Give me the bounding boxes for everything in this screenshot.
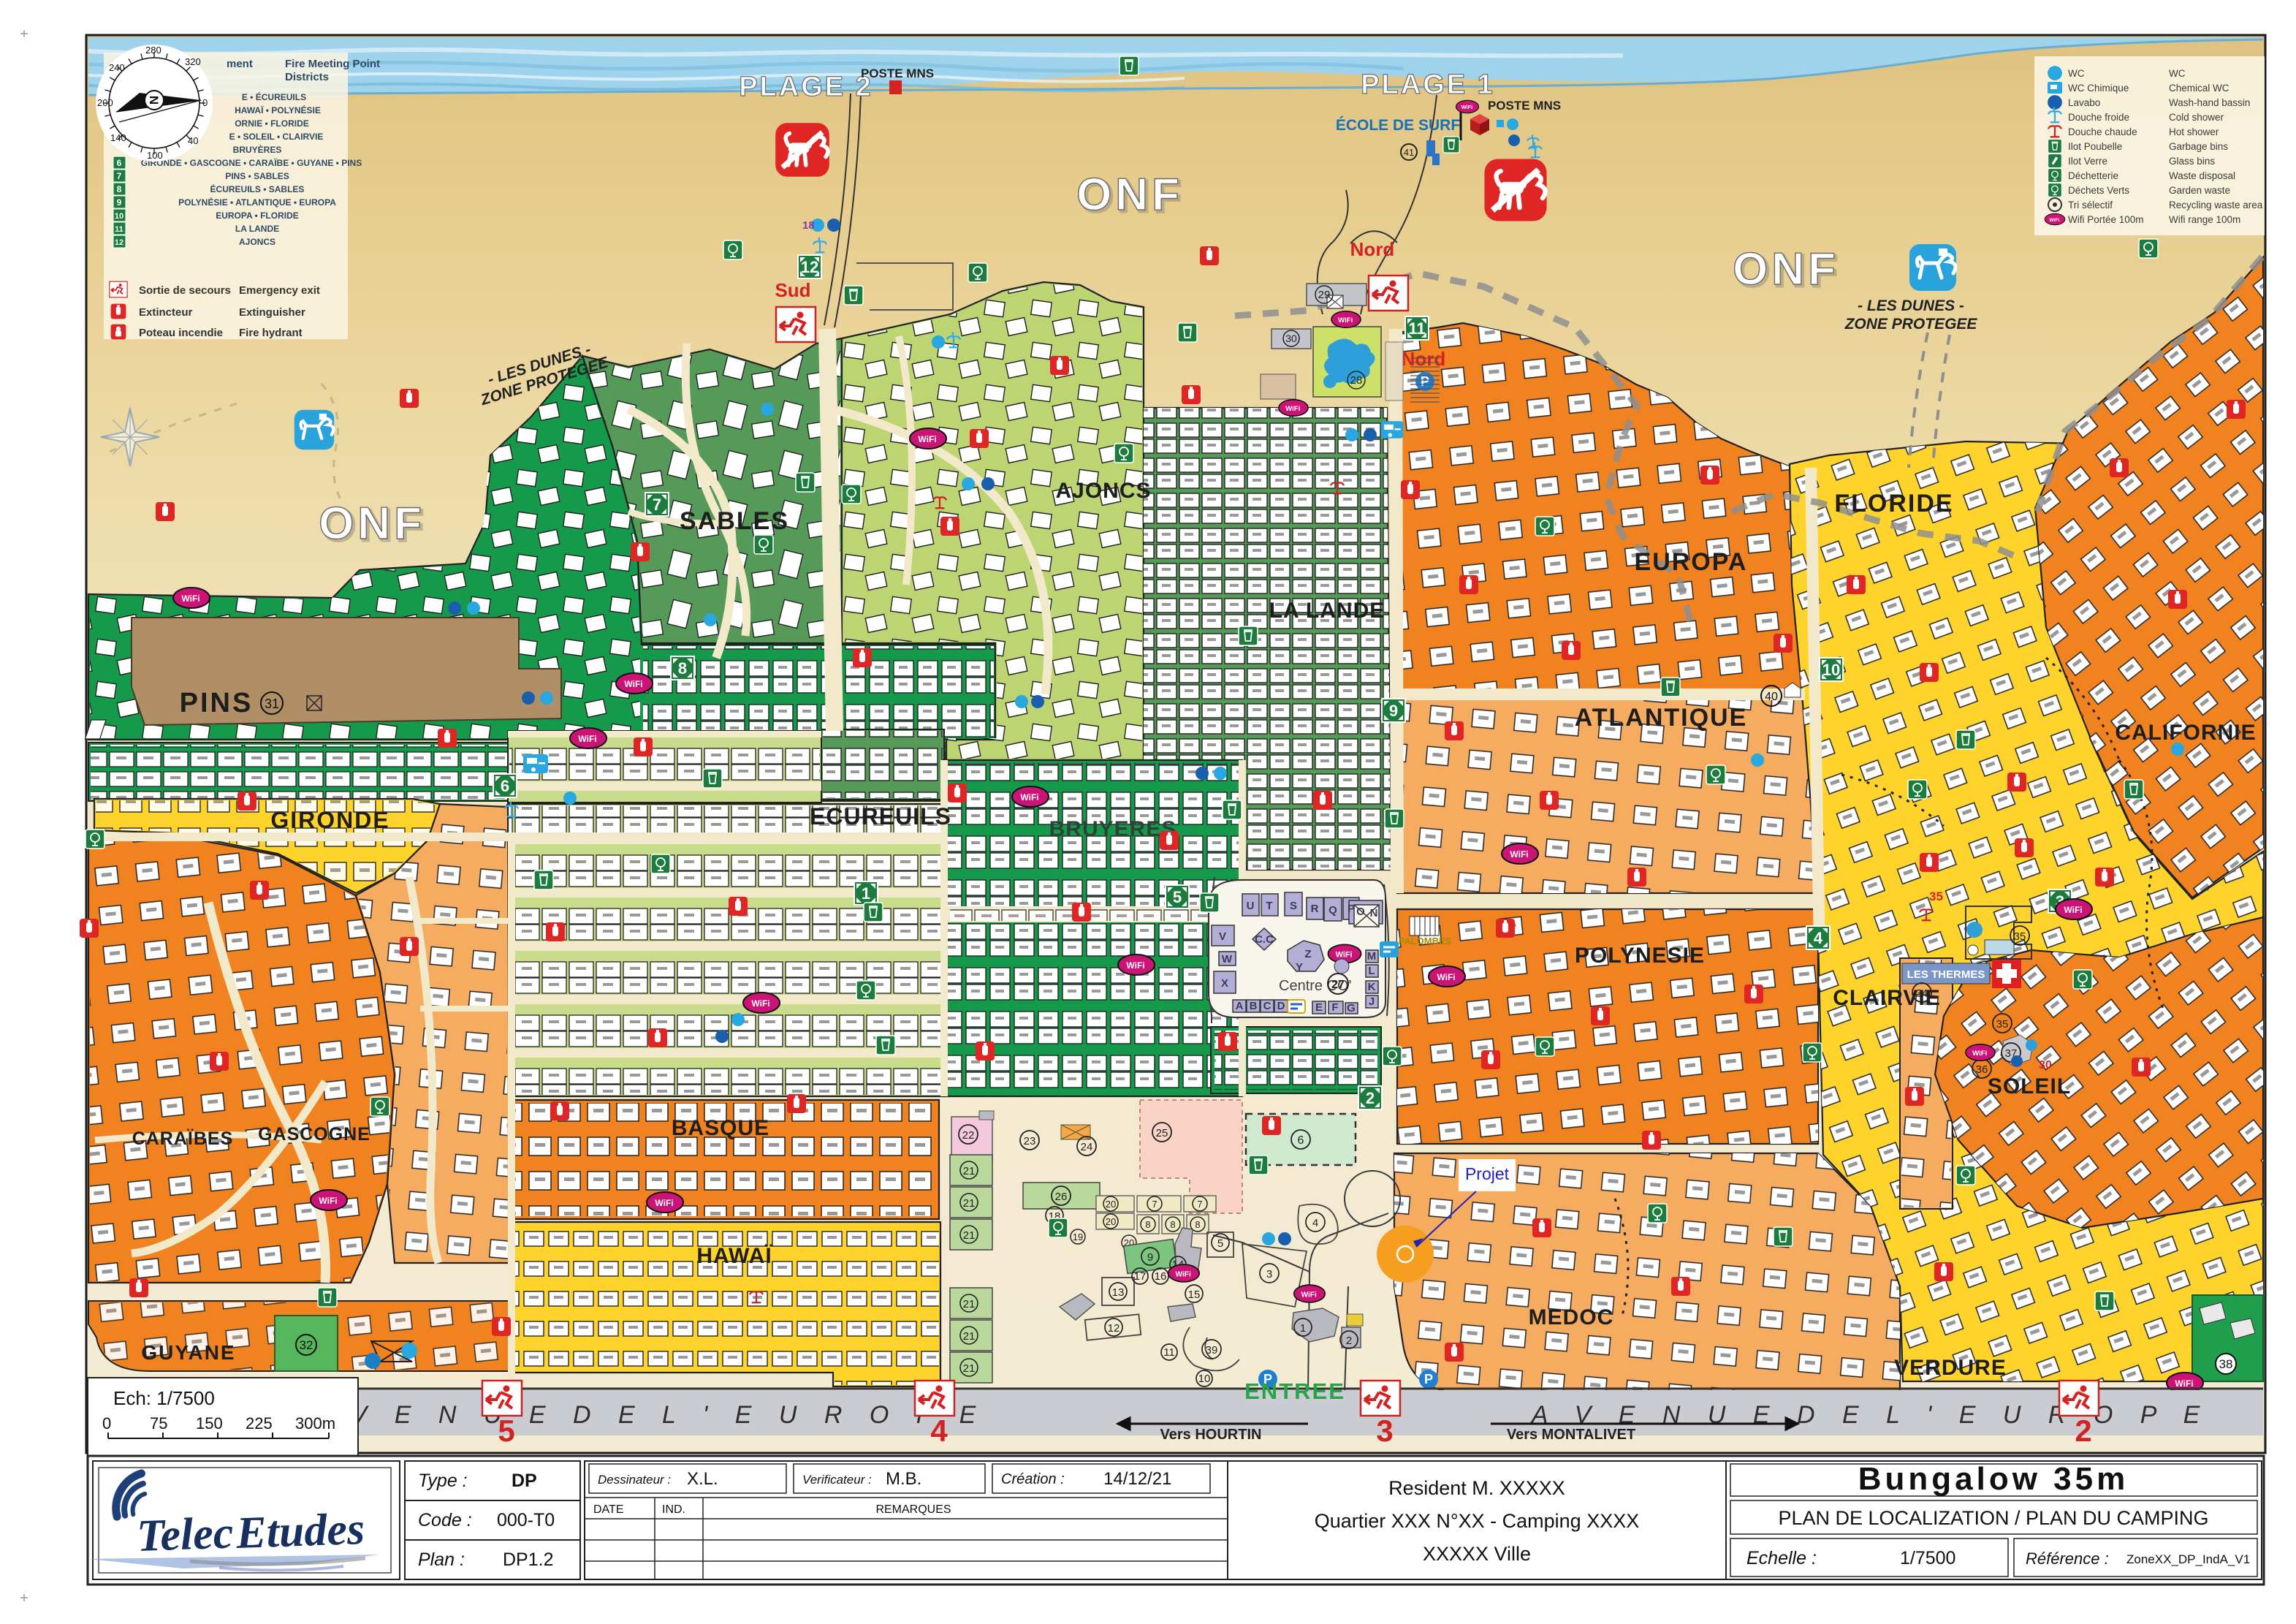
svg-text:HAWAÏ • POLYNÉSIE: HAWAÏ • POLYNÉSIE [235,105,321,115]
svg-text:11: 11 [1163,1346,1175,1359]
svg-text:GUYANE: GUYANE [141,1341,235,1364]
svg-text:14/12/21: 14/12/21 [1103,1469,1171,1489]
svg-text:GIRONDE • GASCOGNE • CARAÏBE •: GIRONDE • GASCOGNE • CARAÏBE • GUYANE • … [141,157,362,168]
svg-text:Poteau incendie: Poteau incendie [139,327,223,339]
svg-text:Resident M. XXXXX: Resident M. XXXXX [1388,1477,1565,1499]
svg-text:SOLEIL: SOLEIL [1988,1074,2071,1099]
svg-text:11: 11 [1408,319,1425,338]
svg-text:10: 10 [1822,661,1840,679]
svg-text:IND.: IND. [662,1503,685,1516]
svg-text:- LES DUNES -: - LES DUNES - [1858,297,1964,314]
svg-text:2: 2 [1366,1089,1375,1107]
svg-text:R: R [1311,903,1319,915]
svg-text:GASCOGNE: GASCOGNE [258,1124,370,1145]
svg-text:150: 150 [196,1414,223,1433]
svg-text:Chemical WC: Chemical WC [2169,83,2230,94]
svg-text:U: U [1247,900,1255,912]
svg-text:26: 26 [1055,1191,1068,1203]
svg-text:Ilot Verre: Ilot Verre [2068,156,2107,167]
svg-text:31: 31 [265,697,279,711]
svg-text:G: G [1347,1002,1356,1014]
svg-text:21: 21 [963,1165,976,1177]
svg-text:11: 11 [115,225,123,234]
svg-text:K: K [1368,981,1376,993]
svg-text:7: 7 [1197,1199,1202,1210]
svg-text:S: S [1290,900,1297,912]
svg-text:0: 0 [102,1414,111,1433]
svg-text:0: 0 [202,97,208,108]
svg-text:PALOMBES: PALOMBES [1399,936,1452,946]
svg-text:F: F [1331,1001,1338,1014]
svg-text:8: 8 [1195,1219,1200,1230]
svg-text:WC Chimique: WC Chimique [2068,83,2129,94]
svg-text:21: 21 [963,1229,976,1242]
svg-text:6: 6 [117,158,122,168]
svg-text:CALIFORNIE: CALIFORNIE [2115,721,2256,745]
svg-text:LES THERMES: LES THERMES [1907,968,1985,981]
svg-text:Fire hydrant: Fire hydrant [239,327,303,339]
svg-text:35: 35 [1929,889,1943,903]
svg-text:Ilot Poubelle: Ilot Poubelle [2068,141,2122,152]
svg-text:Recycling waste area: Recycling waste area [2169,200,2263,210]
svg-text:5: 5 [498,1414,514,1448]
svg-text:BRUYÈRES: BRUYÈRES [233,144,282,155]
svg-text:DP1.2: DP1.2 [503,1549,553,1570]
svg-text:Wifi Portée 100m: Wifi Portée 100m [2068,214,2144,225]
svg-text:140: 140 [110,132,126,143]
svg-text:4: 4 [1312,1217,1318,1229]
svg-text:X: X [1221,977,1228,990]
svg-text:A V E N U E D E L ' E U R: A V E N U E D E L ' E U R O P E [306,1401,987,1429]
svg-text:3: 3 [1376,1414,1393,1448]
svg-text:Y: Y [1296,961,1303,974]
svg-text:BASQUE: BASQUE [672,1116,769,1140]
svg-text:PINS: PINS [180,688,254,718]
svg-text:DATE: DATE [593,1503,623,1516]
svg-text:30: 30 [2039,1059,2052,1071]
svg-text:CARAÏBES: CARAÏBES [132,1128,234,1149]
svg-text:Type :: Type : [418,1471,468,1491]
svg-text:Q: Q [1328,904,1337,917]
svg-text:34: 34 [1916,987,1928,1000]
svg-text:280: 280 [145,45,161,56]
svg-text:REMARQUES: REMARQUES [875,1503,951,1516]
svg-text:225: 225 [246,1414,273,1433]
svg-text:25: 25 [1156,1127,1168,1139]
svg-text:1: 1 [862,884,870,903]
svg-text:Déchetterie: Déchetterie [2068,170,2118,181]
svg-text:Districts: Districts [285,71,329,83]
svg-text:35: 35 [2014,930,2026,943]
svg-text:VERDURE: VERDURE [1894,1356,2007,1380]
svg-text:4: 4 [1814,929,1823,947]
svg-text:Garbage bins: Garbage bins [2169,141,2228,152]
svg-text:ORNIE • FLORIDE: ORNIE • FLORIDE [235,118,309,129]
svg-text:32: 32 [300,1338,313,1352]
svg-text:EUROPA: EUROPA [1635,548,1748,576]
svg-text:MEDOC: MEDOC [1529,1305,1614,1329]
svg-text:BRUYERES: BRUYERES [1049,817,1177,841]
svg-text:T: T [1266,900,1272,912]
svg-text:ment: ment [227,58,253,70]
svg-text:FLORIDE: FLORIDE [1834,490,1953,517]
svg-text:39: 39 [1206,1344,1218,1357]
svg-text:17: 17 [1134,1270,1147,1283]
svg-text:20: 20 [1106,1199,1116,1210]
svg-text:ONF: ONF [319,498,425,549]
svg-text:M: M [1367,950,1377,963]
svg-text:300m: 300m [295,1414,335,1433]
svg-text:22: 22 [962,1129,975,1142]
svg-text:2: 2 [2075,1414,2091,1448]
svg-text:J: J [1369,995,1375,1008]
svg-text:L: L [1368,965,1375,977]
svg-text:PLAGE 2: PLAGE 2 [739,72,873,102]
svg-text:4: 4 [930,1414,948,1448]
svg-text:13: 13 [1112,1286,1125,1299]
svg-text:Nord: Nord [1350,238,1395,260]
svg-text:1: 1 [1300,1322,1306,1335]
svg-text:5: 5 [1217,1237,1223,1250]
svg-text:10: 10 [115,212,123,221]
svg-text:2: 2 [1346,1335,1352,1347]
svg-text:8: 8 [678,659,687,678]
svg-text:40: 40 [188,135,198,146]
svg-text:V: V [1219,930,1226,943]
svg-text:W: W [1222,953,1233,965]
svg-text:23: 23 [1024,1135,1036,1147]
svg-text:200: 200 [97,97,113,108]
svg-text:ZONE PROTEGEE: ZONE PROTEGEE [1844,316,1978,333]
svg-text:GIRONDE: GIRONDE [270,807,389,833]
svg-text:Tri sélectif: Tri sélectif [2068,200,2113,210]
svg-text:Z: Z [1304,948,1311,960]
svg-text:40: 40 [1765,691,1778,703]
svg-text:8: 8 [1170,1219,1175,1230]
svg-text:6: 6 [1298,1134,1304,1147]
svg-text:ÉCUREUILS • SABLES: ÉCUREUILS • SABLES [210,183,305,194]
svg-text:Telec: Telec [136,1508,234,1561]
svg-text:Référence :: Référence : [2026,1549,2109,1568]
svg-text:AJONCS: AJONCS [239,237,275,247]
svg-text:E • ÉCUREUILS: E • ÉCUREUILS [242,91,306,102]
svg-text:POLYNÉSIE • ATLANTIQUE • EUROP: POLYNÉSIE • ATLANTIQUE • EUROPA [178,197,336,208]
svg-text:Création :: Création : [1001,1471,1065,1487]
svg-text:41: 41 [1404,147,1414,158]
svg-text:Fire Meeting Point: Fire Meeting Point [285,58,380,70]
svg-text:21: 21 [963,1298,976,1310]
svg-text:E: E [1315,1001,1323,1014]
svg-text:PLAN DE LOCALIZATION / PLAN DU: PLAN DE LOCALIZATION / PLAN DU CAMPING [1778,1507,2208,1529]
svg-text:Douche froide: Douche froide [2068,112,2129,123]
svg-text:Dessinateur :: Dessinateur : [598,1473,671,1487]
svg-text:9: 9 [1389,702,1398,720]
svg-text:75: 75 [150,1414,167,1433]
svg-text:O: O [1356,906,1365,918]
svg-text:N: N [1370,907,1378,919]
svg-text:16: 16 [1155,1270,1167,1283]
svg-text:WC: WC [2068,68,2085,79]
svg-text:Wash-hand bassin: Wash-hand bassin [2169,97,2250,108]
svg-text:28: 28 [1350,374,1363,387]
svg-text:Lavabo: Lavabo [2068,97,2100,108]
svg-text:SABLES: SABLES [680,507,789,535]
svg-text:Plan :: Plan : [418,1549,465,1570]
svg-text:P: P [1347,903,1355,915]
svg-text:ONF: ONF [1076,170,1183,220]
svg-text:12: 12 [1108,1322,1120,1335]
svg-text:Glass bins: Glass bins [2169,156,2215,167]
svg-text:100: 100 [147,150,163,161]
svg-text:27: 27 [1331,979,1345,991]
svg-text:X.L.: X.L. [687,1469,718,1489]
svg-text:29: 29 [1318,289,1331,301]
svg-text:36: 36 [1976,1063,1988,1076]
svg-text:35: 35 [1996,1018,2009,1031]
svg-text:9: 9 [1147,1251,1153,1264]
svg-text:20: 20 [1106,1216,1116,1227]
svg-text:HAWAÏ: HAWAÏ [696,1244,772,1268]
svg-text:POSTE MNS: POSTE MNS [1488,99,1561,113]
svg-text:DP: DP [512,1471,537,1491]
svg-text:38: 38 [2219,1357,2233,1371]
svg-text:ATLANTIQUE: ATLANTIQUE [1575,704,1748,732]
svg-text:8: 8 [117,184,122,194]
svg-text:Extinguisher: Extinguisher [239,306,305,319]
svg-text:ENTREE: ENTREE [1244,1378,1345,1404]
svg-text:WC: WC [2169,68,2186,79]
svg-text:9: 9 [117,197,122,208]
svg-text:15: 15 [1188,1289,1201,1301]
svg-text:POLYNESIE: POLYNESIE [1575,944,1705,968]
svg-text:LA LANDE: LA LANDE [1269,599,1385,623]
svg-text:Vers HOURTIN: Vers HOURTIN [1160,1427,1262,1443]
svg-text:000-T0: 000-T0 [497,1510,555,1530]
svg-text:Echelle :: Echelle : [1746,1548,1817,1568]
svg-text:21: 21 [963,1330,976,1343]
svg-text:19: 19 [1073,1232,1083,1242]
svg-text:30: 30 [1285,333,1297,344]
svg-text:Cold shower: Cold shower [2169,112,2224,123]
svg-text:N: N [147,96,161,105]
svg-text:3: 3 [1266,1268,1272,1280]
svg-text:XXXXX Ville: XXXXX Ville [1423,1543,1531,1565]
svg-text:7: 7 [653,496,661,514]
svg-text:B: B [1250,1000,1258,1012]
svg-text:24: 24 [1081,1141,1093,1153]
svg-text:Douche chaude: Douche chaude [2068,126,2137,137]
svg-text:Extincteur: Extincteur [139,306,193,319]
svg-text:18: 18 [802,219,815,232]
svg-text:320: 320 [185,56,201,67]
svg-text:Bungalow 35m: Bungalow 35m [1858,1461,2129,1497]
svg-text:240: 240 [109,62,125,73]
svg-text:Sud: Sud [775,279,810,301]
svg-text:Quartier XXX N°XX - Camping XX: Quartier XXX N°XX - Camping XXXX [1315,1510,1639,1532]
svg-text:Verificateur :: Verificateur : [802,1473,872,1487]
svg-text:POSTE MNS: POSTE MNS [861,67,934,80]
svg-text:Garden waste: Garden waste [2169,185,2230,196]
svg-text:6: 6 [501,777,509,795]
svg-text:Déchets Verts: Déchets Verts [2068,185,2129,196]
svg-text:LA LANDE: LA LANDE [235,224,279,234]
svg-text:M.B.: M.B. [886,1469,921,1489]
svg-text:C.C: C.C [1255,933,1274,946]
svg-text:A: A [1236,1000,1244,1012]
svg-text:1/7500: 1/7500 [1900,1548,1955,1568]
svg-text:10: 10 [1198,1373,1211,1385]
svg-text:21: 21 [963,1362,976,1375]
svg-text:5: 5 [1173,888,1182,906]
svg-text:PINS • SABLES: PINS • SABLES [225,171,289,181]
svg-text:Ech: 1/7500: Ech: 1/7500 [113,1387,215,1409]
svg-text:21: 21 [963,1197,976,1210]
svg-text:12: 12 [801,258,818,276]
svg-text:PLAGE 1: PLAGE 1 [1361,69,1495,100]
svg-text:Etudes: Etudes [235,1504,365,1558]
svg-text:Sortie de secours: Sortie de secours [139,284,231,297]
svg-text:Hot shower: Hot shower [2169,126,2219,137]
svg-text:Waste disposal: Waste disposal [2169,170,2235,181]
svg-text:7: 7 [117,171,122,181]
svg-text:E • SOLEIL • CLAIRVIE: E • SOLEIL • CLAIRVIE [229,132,324,142]
svg-text:12: 12 [115,238,123,247]
svg-text:Code :: Code : [418,1510,472,1530]
svg-text:8: 8 [1145,1219,1150,1230]
svg-text:EUROPA • FLORIDE: EUROPA • FLORIDE [216,210,299,221]
svg-text:D: D [1277,1000,1285,1012]
svg-text:ZoneXX_DP_IndA_V1: ZoneXX_DP_IndA_V1 [2126,1552,2250,1566]
svg-text:C: C [1263,1000,1271,1012]
svg-text:ÉCOLE DE SURF: ÉCOLE DE SURF [1336,117,1461,134]
svg-text:Projet: Projet [1465,1164,1510,1183]
svg-text:ONF: ONF [1733,244,1839,295]
svg-text:AJONCS: AJONCS [1055,479,1151,503]
svg-text:7: 7 [1152,1199,1157,1210]
svg-text:Vers MONTALIVET: Vers MONTALIVET [1507,1427,1635,1443]
svg-text:Emergency exit: Emergency exit [239,284,320,297]
svg-text:ECUREUILS: ECUREUILS [810,803,951,830]
svg-text:Wifi range 100m: Wifi range 100m [2169,214,2240,225]
